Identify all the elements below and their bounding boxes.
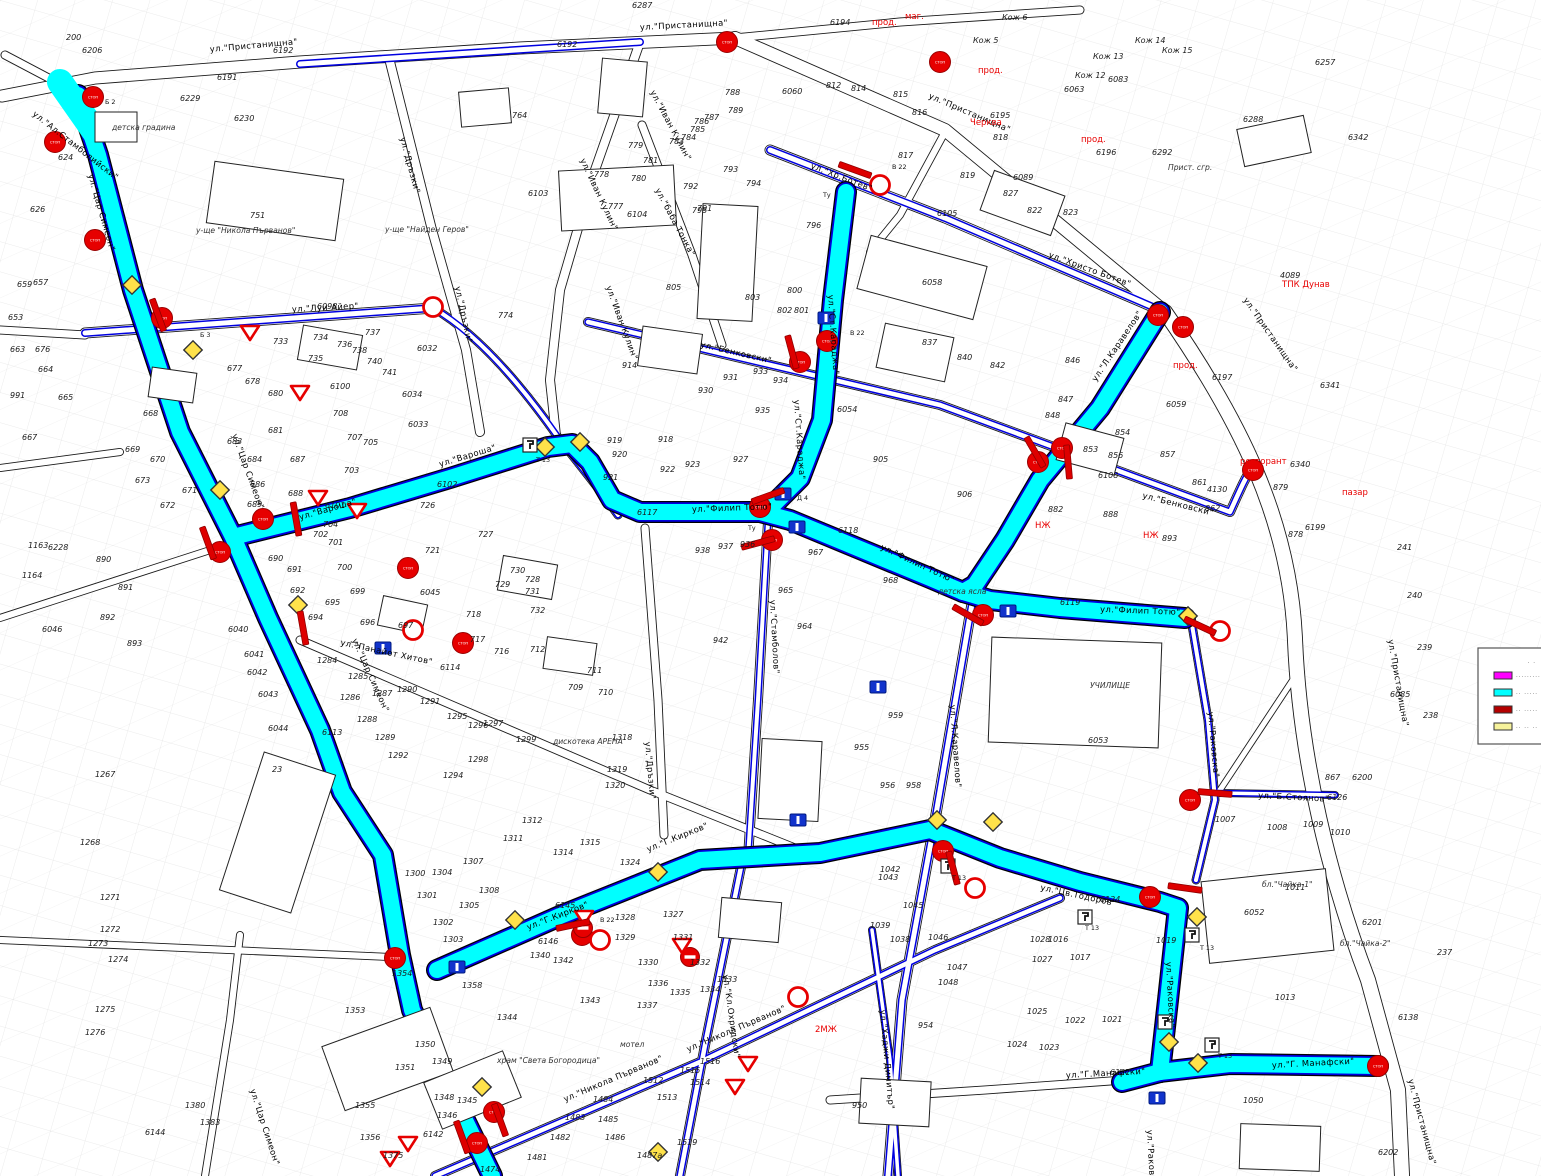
parcel-number: 789: [728, 106, 743, 115]
parcel-number: 1329: [615, 933, 635, 942]
parcel-number: 827: [1003, 189, 1019, 198]
poi-label: ТПК Дунав: [1281, 280, 1330, 290]
parcel-number: 774: [498, 311, 513, 320]
parcel-number: 6060: [782, 87, 802, 96]
parcel-number: 1308: [479, 886, 499, 895]
parcel-number: 950: [852, 1101, 867, 1110]
parcel-number: 1268: [80, 838, 100, 847]
parcel-number: 1315: [580, 838, 600, 847]
parcel-number: 1519: [677, 1138, 697, 1147]
route-code-label: Т 13: [535, 456, 550, 464]
parcel-number: 738: [352, 346, 367, 355]
parcel-number: 1023: [1039, 1043, 1059, 1052]
landmark-label: храм "Света Богородица": [496, 1056, 600, 1065]
parcel-number: 1298: [468, 755, 488, 764]
parcel-number: 1320: [605, 781, 625, 790]
legend-route-yellow-label: ·· ·· ··: [1516, 725, 1538, 731]
parcel-number: 238: [1423, 711, 1438, 720]
parcel-number: 888: [1103, 510, 1118, 519]
landmark-label: детска градина: [111, 123, 176, 132]
parcel-number: 6201: [1362, 918, 1382, 927]
building-footprint: [598, 58, 648, 117]
bus-sign: [449, 961, 465, 973]
parcel-number: 801: [794, 306, 809, 315]
parcel-number: 967: [808, 548, 824, 557]
parcel-number: 816: [912, 108, 927, 117]
parcel-number: 6100: [330, 382, 350, 391]
parcel-number: 1024: [1007, 1040, 1027, 1049]
building-footprint: [148, 367, 197, 403]
parcel-number: 1383: [200, 1118, 220, 1127]
parcel-number: 1305: [459, 901, 479, 910]
parcel-number: 1028: [1030, 935, 1050, 944]
parcel-number: 893: [127, 639, 142, 648]
parcel-number: 1512: [643, 1076, 663, 1085]
parcel-number: 624: [58, 153, 73, 162]
stop-sign: СТОП: [1368, 1056, 1389, 1077]
parcel-number: 1295: [447, 712, 467, 721]
parcel-number: 1016: [1048, 935, 1068, 944]
parcel-number: 708: [333, 409, 348, 418]
parcel-number: 1356: [360, 1133, 380, 1142]
route-code-label: Б 3: [200, 331, 210, 339]
parcel-number: 781: [643, 156, 658, 165]
parcel-number: 1483: [565, 1113, 585, 1122]
parcel-number: 736: [337, 340, 352, 349]
parcel-number: 6042: [247, 668, 267, 677]
parcel-number: 958: [906, 781, 921, 790]
parcel-number: 691: [287, 565, 302, 574]
parcel-number: 1050: [1243, 1096, 1263, 1105]
parcel-number: 1274: [108, 955, 128, 964]
parcel-number: 6052: [1244, 908, 1264, 917]
parcel-number: 665: [58, 393, 73, 402]
parcel-number: 853: [1083, 445, 1098, 454]
parcel-number: 1351: [395, 1063, 415, 1072]
stop-sign: СТОП: [930, 52, 951, 73]
route-code-label: В 22: [600, 916, 615, 924]
parcel-number: 6206: [82, 46, 102, 55]
tbox-sign: [523, 438, 537, 452]
parcel-number: 6103: [528, 189, 548, 198]
ring-sign: [591, 931, 610, 950]
legend-route-red-label: ·· ·····: [1516, 708, 1538, 714]
parcel-number: 1290: [397, 685, 417, 694]
map-canvas: СТОПСТОПСТОПСТОПСТОПСТОПСТОПСТОПСТОПСТОП…: [0, 0, 1541, 1176]
landmark-label: Прист. сгр.: [1168, 163, 1212, 172]
parcel-number: 6059: [1166, 400, 1186, 409]
parcel-number: 893: [1162, 534, 1177, 543]
parcel-number: 803: [745, 293, 760, 302]
parcel-number: 6041: [244, 650, 264, 659]
parcel-number: 653: [8, 313, 23, 322]
parcel-number: 936: [740, 540, 755, 549]
parcel-number: 1327: [663, 910, 684, 919]
parcel-number: 1481: [527, 1153, 547, 1162]
parcel-number: 854: [1115, 428, 1130, 437]
parcel-number: 882: [1048, 505, 1063, 514]
parcel-number: 959: [888, 711, 903, 720]
parcel-number: 1294: [443, 771, 463, 780]
poi-label: прод.: [978, 66, 1003, 76]
route-code-label: В 22: [892, 163, 907, 171]
stop-sign: СТОП: [1173, 317, 1194, 338]
parcel-number: Кож 13: [1093, 52, 1124, 61]
landmark-label: бл."Чайка-1": [1262, 880, 1313, 889]
parcel-number: 892: [100, 613, 115, 622]
parcel-number: 663: [10, 345, 25, 354]
parcel-number: 740: [367, 357, 382, 366]
parcel-number: 793: [723, 165, 738, 174]
parcel-number: 6292: [1152, 148, 1172, 157]
parcel-number: 6043: [258, 690, 278, 699]
parcel-number: 867: [1325, 773, 1341, 782]
parcel-number: 1048: [938, 978, 958, 987]
parcel-number: 6108: [1098, 471, 1118, 480]
parcel-number: 1275: [95, 1005, 115, 1014]
parcel-number: 906: [957, 490, 972, 499]
poi-label: прод.: [1173, 361, 1198, 371]
svg-text:СТОП: СТОП: [1248, 469, 1259, 473]
parcel-number: 1375: [383, 1151, 403, 1160]
parcel-number: 817: [898, 151, 914, 160]
parcel-number: 240: [1407, 591, 1422, 600]
parcel-number: 728: [525, 575, 540, 584]
parcel-number: 6034: [402, 390, 422, 399]
parcel-number: 1335: [670, 988, 690, 997]
parcel-number: 6118: [838, 526, 858, 535]
parcel-number: 1516: [700, 1057, 720, 1066]
building-footprint: [758, 738, 822, 821]
svg-text:СТОП: СТОП: [722, 41, 733, 45]
parcel-number: 6117: [637, 508, 658, 517]
parcel-number: 1354: [392, 969, 412, 978]
bus-sign: [1149, 1092, 1165, 1104]
svg-text:СТОП: СТОП: [1145, 896, 1156, 900]
parcel-number: 1276: [85, 1028, 105, 1037]
bus-sign: [870, 681, 886, 693]
parcel-number: 965: [778, 586, 793, 595]
route-code-label: Б 2: [105, 98, 115, 106]
parcel-number: 1045: [903, 901, 923, 910]
svg-text:СТОП: СТОП: [1373, 1065, 1384, 1069]
parcel-number: 692: [290, 586, 305, 595]
parcel-number: 1380: [185, 1101, 205, 1110]
parcel-number: 1307: [463, 857, 484, 866]
poi-label: прод.: [1081, 135, 1106, 145]
parcel-number: 779: [628, 141, 643, 150]
parcel-number: 1314: [553, 848, 573, 857]
building-footprint: [1239, 1124, 1321, 1172]
svg-text:СТОП: СТОП: [472, 1142, 483, 1146]
stop-sign: СТОП: [1148, 305, 1169, 326]
parcel-number: 800: [787, 286, 802, 295]
parcel-number: 6113: [322, 728, 342, 737]
parcel-number: 239: [1417, 643, 1432, 652]
parcel-number: 1349: [432, 1057, 452, 1066]
landmark-label: дискотека АРЕНА: [552, 737, 623, 746]
legend-route-magenta: [1494, 672, 1512, 679]
parcel-number: 701: [328, 538, 343, 547]
legend-route-red: [1494, 706, 1512, 713]
parcel-number: 794: [746, 179, 761, 188]
parcel-number: 795: [692, 206, 707, 215]
parcel-number: 812: [826, 81, 841, 90]
parcel-number: 6257: [1315, 58, 1336, 67]
parcel-number: 6199: [1305, 523, 1325, 532]
parcel-number: 927: [733, 455, 749, 464]
parcel-number: 735: [308, 354, 323, 363]
parcel-number: 6046: [42, 625, 62, 634]
parcel-number: 1311: [503, 834, 523, 843]
parcel-number: 703: [344, 466, 359, 475]
parcel-number: 6340: [1290, 460, 1310, 469]
parcel-number: 1485: [598, 1115, 618, 1124]
parcel-number: Кож 12: [1075, 71, 1106, 80]
parcel-number: 6126: [1327, 793, 1347, 802]
parcel-number: 6229: [180, 94, 200, 103]
parcel-number: 697: [398, 621, 414, 630]
parcel-number: 914: [622, 361, 637, 370]
parcel-number: 712: [530, 645, 545, 654]
parcel-number: 1009: [1303, 820, 1323, 829]
parcel-number: 788: [725, 88, 740, 97]
parcel-number: 1340: [530, 951, 550, 960]
parcel-number: 1344: [497, 1013, 517, 1022]
parcel-number: 1484: [593, 1095, 613, 1104]
parcel-number: 6105: [937, 209, 957, 218]
parcel-number: 1304: [432, 868, 452, 877]
poi-label: НЖ: [1143, 531, 1159, 541]
parcel-number: 694: [308, 613, 323, 622]
parcel-number: 918: [658, 435, 673, 444]
parcel-number: 1342: [553, 956, 573, 965]
parcel-number: 6114: [440, 663, 460, 672]
parcel-number: 672: [160, 501, 175, 510]
svg-text:СТОП: СТОП: [215, 551, 226, 555]
parcel-number: 1289: [375, 733, 395, 742]
parcel-number: 6288: [1243, 115, 1263, 124]
parcel-number: 696: [360, 618, 375, 627]
parcel-number: 6119: [1060, 598, 1080, 607]
parcel-number: 6230: [234, 114, 254, 123]
parcel-number: 1337: [637, 1001, 658, 1010]
parcel-number: 933: [753, 367, 768, 376]
parcel-number: 1286: [340, 693, 360, 702]
parcel-number: 1348: [434, 1093, 454, 1102]
parcel-number: 848: [1045, 411, 1060, 420]
landmark-label: УЧИЛИЩЕ: [1090, 681, 1130, 690]
parcel-number: 716: [494, 647, 509, 656]
parcel-number: 847: [1058, 395, 1074, 404]
parcel-number: 921: [603, 473, 618, 482]
parcel-number: 1046: [928, 933, 948, 942]
poi-label: ресторант: [1240, 457, 1287, 467]
svg-text:СТОП: СТОП: [50, 141, 61, 145]
parcel-number: 669: [125, 445, 140, 454]
parcel-number: 935: [755, 406, 770, 415]
parcel-number: 954: [918, 1021, 933, 1030]
tbox-sign: [1078, 910, 1092, 924]
parcel-number: 822: [1027, 206, 1042, 215]
parcel-number: 670: [150, 455, 165, 464]
map-legend: · ············· ······· ······· ·· ··: [1478, 648, 1541, 744]
building-footprint: [718, 897, 781, 942]
parcel-number: 1291: [420, 697, 440, 706]
parcel-number: 711: [587, 666, 602, 675]
parcel-number: 751: [250, 211, 265, 220]
parcel-number: 923: [685, 460, 700, 469]
parcel-number: 687: [290, 455, 306, 464]
parcel-number: 717: [470, 635, 486, 644]
parcel-number: 1474: [480, 1165, 500, 1174]
parcel-number: 667: [22, 433, 38, 442]
parcel-number: 1332: [690, 958, 710, 967]
parcel-number: 6191: [217, 73, 237, 82]
parcel-number: 690: [268, 554, 283, 563]
parcel-number: 6138: [1398, 1013, 1418, 1022]
parcel-number: Кож 14: [1135, 36, 1166, 45]
parcel-number: 1025: [1027, 1007, 1047, 1016]
parcel-number: 814: [851, 84, 866, 93]
parcel-number: 6142: [423, 1130, 443, 1139]
parcel-number: 1355: [355, 1101, 375, 1110]
parcel-number: 1288: [357, 715, 377, 724]
parcel-number: 6196: [1096, 148, 1116, 157]
parcel-number: 1486: [605, 1133, 625, 1142]
parcel-number: 737: [365, 328, 381, 337]
parcel-number: 890: [96, 555, 111, 564]
parcel-number: 6192: [557, 40, 577, 49]
parcel-number: 6202: [1378, 1148, 1398, 1157]
parcel-number: 707: [347, 433, 363, 442]
parcel-number: 734: [313, 333, 328, 342]
parcel-number: 780: [631, 174, 646, 183]
building-footprint: [638, 326, 703, 374]
parcel-number: 1271: [100, 893, 120, 902]
landmark-label: бл."Чайка-2": [1340, 939, 1391, 948]
parcel-number: 6032: [417, 344, 437, 353]
bus-sign: [1000, 605, 1016, 617]
stop-sign: СТОП: [398, 558, 419, 579]
landmark-label: детска ясла: [937, 587, 987, 596]
poi-label: маг.: [905, 12, 924, 22]
stop-sign: СТОП: [717, 32, 738, 53]
parcel-number: 1513: [657, 1093, 677, 1102]
building-footprint: [459, 88, 512, 127]
parcel-number: 942: [713, 636, 728, 645]
parcel-number: 1267: [95, 770, 116, 779]
parcel-number: 1482: [550, 1133, 570, 1142]
svg-text:СТОП: СТОП: [1185, 799, 1196, 803]
parcel-number: 1273: [88, 939, 108, 948]
parcel-number: 1515: [680, 1066, 700, 1075]
parcel-number: 727: [478, 530, 494, 539]
parcel-number: 1013: [1275, 993, 1295, 1002]
parcel-number: 671: [182, 486, 197, 495]
route-code-label: Т 13: [951, 874, 966, 882]
parcel-number: 680: [268, 389, 283, 398]
ring-sign: [789, 988, 808, 1007]
stop-sign: СТОП: [1140, 887, 1161, 908]
parcel-number: 1336: [648, 979, 668, 988]
parcel-number: 1324: [620, 858, 640, 867]
parcel-number: 840: [957, 353, 972, 362]
svg-text:СТОП: СТОП: [458, 642, 469, 646]
parcel-number: 678: [245, 377, 260, 386]
tbox-sign: [1205, 1038, 1219, 1052]
parcel-number: 819: [960, 171, 975, 180]
building-footprint: [988, 637, 1162, 748]
parcel-number: 6146: [538, 937, 558, 946]
parcel-number: 732: [530, 606, 545, 615]
parcel-number: 878: [1288, 530, 1303, 539]
parcel-number: 676: [35, 345, 50, 354]
svg-text:СТОП: СТОП: [978, 614, 989, 618]
parcel-number: 1328: [615, 913, 635, 922]
parcel-number: 1010: [1330, 828, 1350, 837]
parcel-number: 1021: [1102, 1015, 1122, 1024]
parcel-number: 664: [38, 365, 53, 374]
parcel-number: 1272: [100, 925, 120, 934]
parcel-number: 905: [873, 455, 888, 464]
parcel-number: 709: [568, 683, 583, 692]
parcel-number: 730: [510, 566, 525, 575]
parcel-number: 237: [1437, 948, 1453, 957]
parcel-number: 681: [268, 426, 283, 435]
bus-sign: [790, 814, 806, 826]
parcel-number: 6044: [268, 724, 288, 733]
parcel-number: Кож 5: [973, 36, 998, 45]
parcel-number: 1017: [1070, 953, 1091, 962]
parcel-number: 1163: [28, 541, 48, 550]
landmark-label: у-ще "Никола Първанов": [195, 226, 295, 235]
parcel-number: 823: [1063, 208, 1078, 217]
parcel-number: 6040: [228, 625, 248, 634]
route-code-label: Ту: [747, 524, 756, 532]
parcel-number: 710: [598, 688, 613, 697]
landmark-label: у-ще "Найден Геров": [384, 225, 469, 234]
parcel-number: 1007: [1215, 815, 1236, 824]
parcel-number: 857: [1160, 450, 1176, 459]
ring-sign: [424, 298, 443, 317]
parcel-number: 6194: [830, 18, 850, 27]
route-code-label: Т 13: [1084, 924, 1099, 932]
parcel-number: 6197: [1212, 373, 1233, 382]
parcel-number: 673: [135, 476, 150, 485]
parcel-number: 1353: [345, 1006, 365, 1015]
route-code-label: Д 4: [797, 494, 808, 502]
parcel-number: 805: [666, 283, 681, 292]
parcel-number: 1043: [878, 873, 898, 882]
parcel-number: 1019: [1156, 936, 1176, 945]
parcel-number: 6287: [632, 1, 653, 10]
poi-label: Черква: [970, 118, 1002, 128]
legend-route-cyan-label: ·· ·····: [1516, 691, 1538, 697]
parcel-number: Кож 15: [1162, 46, 1193, 55]
cadastral-map: СТОПСТОПСТОПСТОПСТОПСТОПСТОПСТОПСТОПСТОП…: [0, 0, 1541, 1176]
stop-sign: СТОП: [253, 509, 274, 530]
parcel-number: 668: [143, 409, 158, 418]
parcel-number: 1297: [483, 719, 504, 728]
svg-text:СТОП: СТОП: [88, 96, 99, 100]
parcel-number: 930: [698, 386, 713, 395]
parcel-number: 659: [17, 280, 32, 289]
parcel-number: 964: [797, 622, 812, 631]
parcel-number: 6045: [420, 588, 440, 597]
parcel-number: 846: [1065, 356, 1080, 365]
parcel-number: 955: [854, 743, 869, 752]
